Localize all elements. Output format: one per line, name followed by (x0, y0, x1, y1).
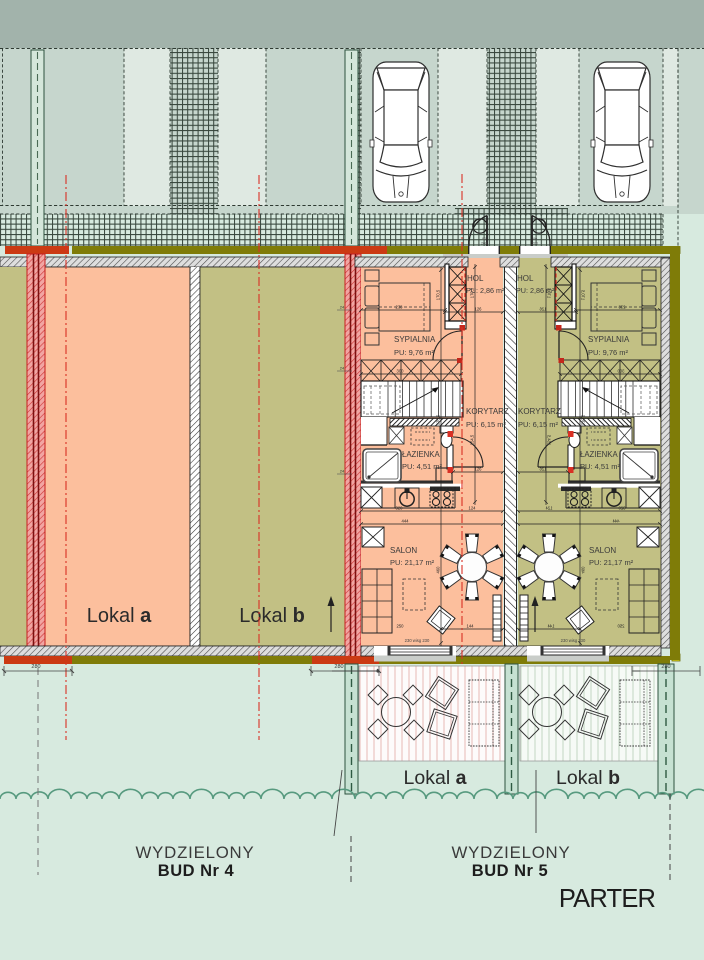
svg-text:320: 320 (396, 506, 404, 511)
svg-text:300: 300 (617, 369, 625, 374)
svg-text:Lokal b: Lokal b (556, 767, 620, 789)
svg-text:SALON: SALON (589, 546, 616, 555)
svg-text:238: 238 (618, 305, 626, 310)
svg-text:KORYTARZ: KORYTARZ (466, 407, 509, 416)
svg-text:176,5: 176,5 (436, 414, 441, 425)
svg-text:460: 460 (581, 566, 586, 574)
svg-text:PU: 21,17 m²: PU: 21,17 m² (589, 558, 634, 567)
svg-text:144: 144 (547, 624, 555, 629)
svg-text:HOL: HOL (467, 274, 484, 283)
svg-text:WYDZIELONY: WYDZIELONY (452, 843, 571, 862)
svg-text:PU: 6,15 m²: PU: 6,15 m² (466, 420, 507, 429)
svg-text:320: 320 (618, 506, 626, 511)
svg-text:154,5: 154,5 (470, 434, 475, 445)
svg-text:BUD Nr 5: BUD Nr 5 (472, 862, 548, 880)
svg-text:238: 238 (396, 305, 404, 310)
svg-text:Lokal a: Lokal a (87, 605, 152, 627)
svg-text:PU: 9,76 m²: PU: 9,76 m² (394, 348, 435, 357)
svg-text:24: 24 (340, 469, 345, 474)
svg-text:Lokal a: Lokal a (404, 767, 467, 789)
svg-text:280: 280 (661, 664, 670, 670)
svg-text:PU: 21,17 m²: PU: 21,17 m² (390, 558, 435, 567)
svg-text:PU: 4,51 m²: PU: 4,51 m² (402, 462, 443, 471)
svg-text:250: 250 (397, 624, 405, 629)
svg-text:144: 144 (467, 624, 475, 629)
svg-text:PU: 4,51 m²: PU: 4,51 m² (580, 462, 621, 471)
svg-text:WYDZIELONY: WYDZIELONY (136, 843, 255, 862)
svg-text:124: 124 (469, 506, 477, 511)
svg-text:126: 126 (539, 307, 547, 312)
svg-text:250: 250 (617, 624, 625, 629)
svg-text:SYPIALNIA: SYPIALNIA (588, 335, 630, 344)
svg-text:24: 24 (340, 305, 345, 310)
svg-text:154,5: 154,5 (547, 434, 552, 445)
svg-text:300: 300 (397, 369, 405, 374)
svg-text:PARTER: PARTER (559, 885, 656, 913)
svg-text:HOL: HOL (517, 274, 534, 283)
svg-text:444: 444 (402, 519, 410, 524)
svg-text:SALON: SALON (390, 546, 417, 555)
svg-text:126: 126 (475, 307, 483, 312)
svg-text:KORYTARZ: KORYTARZ (518, 407, 561, 416)
svg-text:ŁAZIENKA: ŁAZIENKA (580, 450, 618, 459)
svg-text:280: 280 (31, 664, 40, 670)
svg-text:230 wisg 230: 230 wisg 230 (405, 638, 430, 643)
svg-text:ŁAZIENKA: ŁAZIENKA (402, 450, 440, 459)
svg-text:170,5: 170,5 (436, 289, 441, 300)
svg-text:460: 460 (436, 566, 441, 574)
svg-text:126: 126 (539, 467, 547, 472)
svg-text:200: 200 (481, 242, 487, 246)
svg-text:PU: 2,86 m²: PU: 2,86 m² (516, 286, 555, 295)
svg-text:BUD Nr 4: BUD Nr 4 (158, 862, 235, 880)
svg-text:PU: 9,76 m²: PU: 9,76 m² (588, 348, 629, 357)
svg-text:126: 126 (475, 467, 483, 472)
svg-text:176,5: 176,5 (581, 414, 586, 425)
svg-text:24: 24 (340, 366, 345, 371)
svg-text:80: 80 (482, 237, 486, 241)
svg-text:Lokal b: Lokal b (239, 605, 305, 627)
svg-text:124: 124 (545, 506, 553, 511)
svg-text:PU: 6,15 m²: PU: 6,15 m² (518, 420, 559, 429)
svg-text:170,5: 170,5 (581, 289, 586, 300)
svg-text:444: 444 (612, 519, 620, 524)
svg-text:280: 280 (334, 664, 343, 670)
svg-text:230 wisg 230: 230 wisg 230 (561, 638, 586, 643)
svg-text:SYPIALNIA: SYPIALNIA (394, 335, 436, 344)
svg-text:PU: 2,86 m²: PU: 2,86 m² (466, 286, 505, 295)
svg-text:200: 200 (532, 242, 538, 246)
svg-text:80: 80 (533, 237, 537, 241)
